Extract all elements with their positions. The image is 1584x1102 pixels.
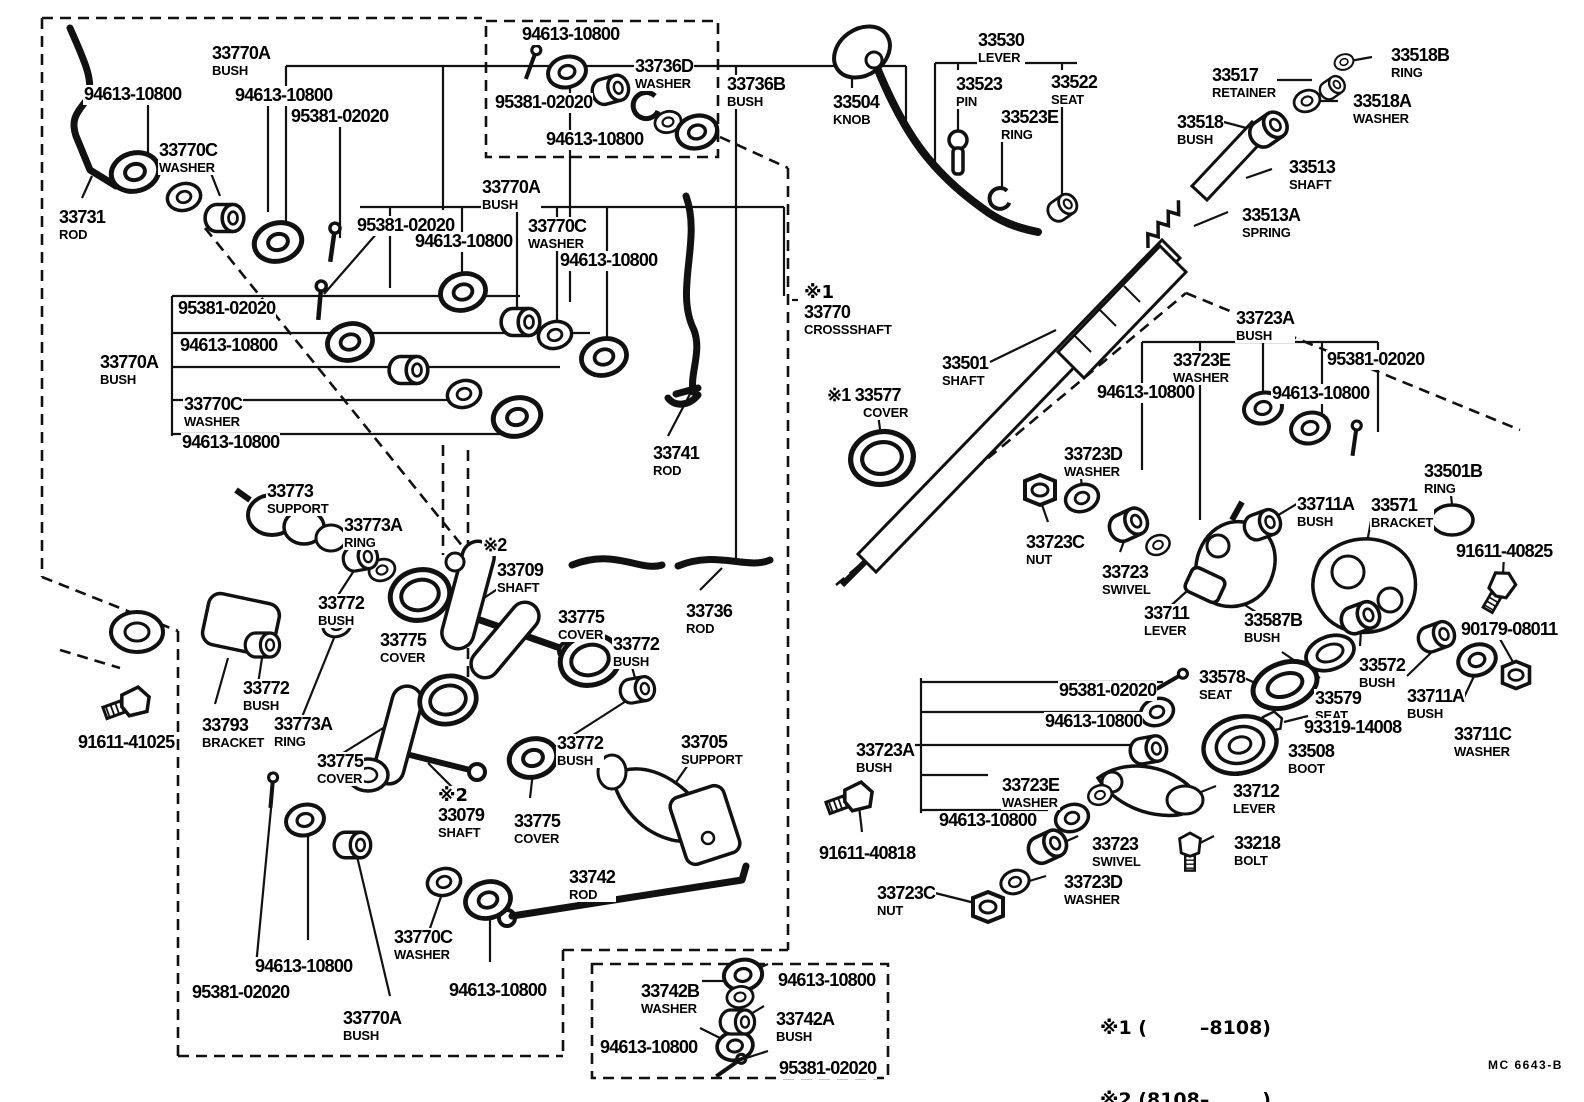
part-label: 33711CWASHER xyxy=(1453,725,1512,759)
part-label: 33770CWASHER xyxy=(183,395,243,429)
ref-mark: ※1 xyxy=(804,283,892,303)
part-subtitle: NUT xyxy=(877,904,935,918)
part-label: 33772BUSH xyxy=(242,679,290,713)
part-label: 94613-10800 xyxy=(777,971,876,991)
part-label: 94613-10800 xyxy=(521,25,620,45)
part-label: 33517RETAINER xyxy=(1211,66,1277,100)
part-label: 95381-02020 xyxy=(1326,350,1425,370)
part-number: 94613-10800 xyxy=(1097,382,1194,402)
part-subtitle: SHAFT xyxy=(1289,178,1335,192)
part-label: 91611-40825 xyxy=(1455,542,1553,562)
part-subtitle: SEAT xyxy=(1051,93,1097,107)
part-label: 94613-10800 xyxy=(1044,712,1143,732)
part-subtitle: RING xyxy=(1424,482,1482,496)
part-number: 94613-10800 xyxy=(84,84,181,104)
part-subtitle: BUSH xyxy=(1236,329,1294,343)
part-number: 33501B xyxy=(1424,461,1482,481)
part-subtitle: ROD xyxy=(686,622,732,636)
part-subtitle: BUSH xyxy=(557,754,603,768)
part-subtitle: WASHER xyxy=(184,415,242,429)
part-number: 33772 xyxy=(613,634,659,654)
part-label: 95381-02020 xyxy=(290,107,389,127)
part-number: 33523E xyxy=(1001,107,1058,127)
part-number: 33723E xyxy=(1002,775,1059,795)
part-label: 33731ROD xyxy=(58,208,106,242)
part-number: 33742A xyxy=(776,1009,834,1029)
part-number: 94613-10800 xyxy=(522,24,619,44)
part-label: 33530LEVER xyxy=(977,31,1025,65)
part-label: 94613-10800 xyxy=(414,232,513,252)
part-number: 33572 xyxy=(1359,655,1405,675)
part-number: 33518B xyxy=(1391,45,1449,65)
part-subtitle: SHAFT xyxy=(438,826,484,840)
part-number: 95381-02020 xyxy=(192,982,289,1002)
part-label: 33770ABUSH xyxy=(99,353,159,387)
part-number: 33723A xyxy=(1236,308,1294,328)
part-number: 33773A xyxy=(274,714,332,734)
part-number: 33775 xyxy=(558,607,604,627)
part-label: 33773SUPPORT xyxy=(266,482,329,516)
part-label: 33770CWASHER xyxy=(393,928,453,962)
part-number: 33773A xyxy=(344,515,402,535)
part-label: 33736ROD xyxy=(685,602,733,636)
part-subtitle: BRACKET xyxy=(202,736,264,750)
part-label: 33772BUSH xyxy=(612,635,660,669)
part-number: 33711A xyxy=(1297,494,1354,514)
part-number: 33218 xyxy=(1234,833,1280,853)
part-subtitle: COVER xyxy=(380,651,426,665)
part-number: 33736B xyxy=(727,74,785,94)
part-number: 33742 xyxy=(569,867,615,887)
part-label: 33523ERING xyxy=(1000,108,1059,142)
part-number: 33775 xyxy=(380,630,426,650)
part-subtitle: RING xyxy=(1391,66,1449,80)
part-label: 95381-02020 xyxy=(1058,681,1157,701)
part-number: 94613-10800 xyxy=(180,335,277,355)
part-label: 33712LEVER xyxy=(1232,782,1280,816)
part-number: 33712 xyxy=(1233,781,1279,801)
part-label: 33513SHAFT xyxy=(1288,158,1336,192)
part-number: 94613-10800 xyxy=(600,1037,697,1057)
part-number: 94613-10800 xyxy=(415,231,512,251)
part-label: 33775COVER xyxy=(513,812,561,846)
part-number: 33736 xyxy=(686,601,732,621)
part-number: 33709 xyxy=(497,560,543,580)
part-subtitle: BUSH xyxy=(856,761,914,775)
part-label: 33723CNUT xyxy=(1025,533,1085,567)
part-subtitle: WASHER xyxy=(635,77,693,91)
part-number: 33711 xyxy=(1144,603,1189,623)
part-number: 33504 xyxy=(833,92,879,112)
part-number: 33772 xyxy=(318,593,364,613)
part-subtitle: BUSH xyxy=(613,655,659,669)
part-subtitle: BOOT xyxy=(1288,762,1334,776)
part-number: 94613-10800 xyxy=(560,250,657,270)
part-subtitle: BUSH xyxy=(1359,676,1405,690)
part-subtitle: LEVER xyxy=(1144,624,1189,638)
part-label: 94613-10800 xyxy=(181,433,280,453)
part-subtitle: BUSH xyxy=(1297,515,1354,529)
part-label: 33772BUSH xyxy=(556,734,604,768)
part-label: 95381-02020 xyxy=(494,93,593,113)
part-label: 33504KNOB xyxy=(832,93,880,127)
part-subtitle: BOLT xyxy=(1234,854,1280,868)
part-label: 33742ABUSH xyxy=(775,1010,835,1044)
part-number: 33770A xyxy=(482,177,540,197)
part-subtitle: BUSH xyxy=(1407,707,1464,721)
part-number: 33587B xyxy=(1244,610,1302,630)
part-number: 33770C xyxy=(528,216,586,236)
part-subtitle: KNOB xyxy=(833,113,879,127)
part-number: 94613-10800 xyxy=(1272,383,1369,403)
part-label: 94613-10800 xyxy=(559,251,658,271)
part-label: 33723DWASHER xyxy=(1063,873,1123,907)
part-subtitle: NUT xyxy=(1026,553,1084,567)
part-number: 33518 xyxy=(1177,112,1223,132)
part-number: 94613-10800 xyxy=(182,432,279,452)
part-subtitle: WASHER xyxy=(528,237,586,251)
part-number: 94613-10800 xyxy=(778,970,875,990)
part-number: 94613-10800 xyxy=(449,980,546,1000)
part-label: 33736DWASHER xyxy=(634,57,694,91)
part-label: 33775COVER xyxy=(316,752,364,786)
part-number: 33711C xyxy=(1454,724,1511,744)
part-subtitle: RING xyxy=(344,536,402,550)
part-label: 95381-02020 xyxy=(778,1059,877,1079)
document-code: MC 6643-B xyxy=(1488,1058,1563,1072)
part-label: 33723CNUT xyxy=(876,884,936,918)
part-label: 95381-02020 xyxy=(177,299,276,319)
part-number: 95381-02020 xyxy=(178,298,275,318)
part-label: 94613-10800 xyxy=(1271,384,1370,404)
part-subtitle: WASHER xyxy=(1002,796,1059,810)
part-number: 33772 xyxy=(557,733,603,753)
part-label: 94613-10800 xyxy=(83,85,182,105)
part-label: 94613-10800 xyxy=(938,811,1037,831)
part-label: 33218BOLT xyxy=(1233,834,1281,868)
part-number: 33513 xyxy=(1289,157,1335,177)
part-subtitle: SHAFT xyxy=(497,581,543,595)
part-number: 33723E xyxy=(1173,350,1230,370)
part-subtitle: WASHER xyxy=(1353,112,1411,126)
part-subtitle: ROD xyxy=(569,888,615,902)
part-label: 91611-41025 xyxy=(77,733,175,753)
part-label: 33772BUSH xyxy=(317,594,365,628)
part-label: 33523PIN xyxy=(955,75,1003,109)
part-number: 33770C xyxy=(184,394,242,414)
part-label: ※133770CROSSSHAFT xyxy=(803,283,893,337)
part-number: ※2 xyxy=(483,535,507,555)
part-label: 94613-10800 xyxy=(599,1038,698,1058)
diagram-art xyxy=(0,0,1584,1102)
part-label: 33770ABUSH xyxy=(342,1009,402,1043)
part-label: 90179-08011 xyxy=(1460,620,1558,640)
part-subtitle: BRACKET xyxy=(1371,516,1433,530)
part-label: 33723EWASHER xyxy=(1001,776,1060,810)
part-label: ※233079SHAFT xyxy=(437,786,485,840)
part-label: 33513ASPRING xyxy=(1241,206,1301,240)
part-number: 33530 xyxy=(978,30,1024,50)
part-subtitle: BUSH xyxy=(1244,631,1302,645)
part-number: 94613-10800 xyxy=(255,956,352,976)
part-number: 94613-10800 xyxy=(546,129,643,149)
note-line-1: ※1 ( –8108) xyxy=(1100,1016,1271,1040)
part-number: 33579 xyxy=(1315,688,1361,708)
part-number: 33522 xyxy=(1051,72,1097,92)
part-number: 91611-40825 xyxy=(1456,541,1552,561)
part-label: 33578SEAT xyxy=(1198,668,1246,702)
part-subtitle: COVER xyxy=(558,628,604,642)
part-label: 33736BBUSH xyxy=(726,75,786,109)
part-subtitle: SWIVEL xyxy=(1092,855,1141,869)
part-number: 95381-02020 xyxy=(1059,680,1156,700)
part-label: 33709SHAFT xyxy=(496,561,544,595)
part-number: 33770C xyxy=(159,140,217,160)
part-number: 94613-10800 xyxy=(1045,711,1142,731)
part-label: 33587BBUSH xyxy=(1243,611,1303,645)
part-number: 33770A xyxy=(100,352,158,372)
part-label: 94613-10800 xyxy=(254,957,353,977)
part-number: 33711A xyxy=(1407,686,1464,706)
part-subtitle: WASHER xyxy=(1064,465,1122,479)
part-label: 33723SWIVEL xyxy=(1091,835,1142,869)
part-label: 33723DWASHER xyxy=(1063,445,1123,479)
part-subtitle: BUSH xyxy=(482,198,540,212)
part-number: 33517 xyxy=(1212,65,1258,85)
part-number: 94613-10800 xyxy=(235,85,332,105)
part-subtitle: LEVER xyxy=(1233,802,1279,816)
part-number: 33770C xyxy=(394,927,452,947)
part-number: 33578 xyxy=(1199,667,1245,687)
part-subtitle: SUPPORT xyxy=(681,753,742,767)
part-subtitle: RING xyxy=(274,735,332,749)
part-label: 94613-10800 xyxy=(448,981,547,1001)
part-number: 33775 xyxy=(317,751,363,771)
part-number: 33523 xyxy=(956,74,1002,94)
part-label: 33723SWIVEL xyxy=(1101,563,1152,597)
part-subtitle: WASHER xyxy=(1064,893,1122,907)
part-label: 33711LEVER xyxy=(1143,604,1190,638)
part-subtitle: ROD xyxy=(59,228,105,242)
part-number: 33731 xyxy=(59,207,105,227)
production-notes: ※1 ( –8108) ※2 (8108– ) xyxy=(1098,968,1277,1102)
part-number: 33793 xyxy=(202,715,248,735)
part-label: 33501BRING xyxy=(1423,462,1483,496)
part-number: ※1 33577 xyxy=(827,385,901,405)
part-label: 33770CWASHER xyxy=(158,141,218,175)
part-subtitle: COVER xyxy=(317,772,363,786)
part-subtitle: BUSH xyxy=(776,1030,834,1044)
part-label: 33770CWASHER xyxy=(527,217,587,251)
part-subtitle: BUSH xyxy=(727,95,785,109)
part-number: 33736D xyxy=(635,56,693,76)
note-line-2: ※2 (8108– ) xyxy=(1100,1088,1271,1102)
part-label: 33773ARING xyxy=(343,516,403,550)
part-label: 33518AWASHER xyxy=(1352,92,1412,126)
part-label: 33793BRACKET xyxy=(201,716,265,750)
part-label: 93319-14008 xyxy=(1303,718,1402,738)
part-number: 33723 xyxy=(1102,562,1148,582)
part-subtitle: BUSH xyxy=(343,1029,401,1043)
part-subtitle: ROD xyxy=(653,464,699,478)
part-number: 33723A xyxy=(856,740,914,760)
part-label: 33711ABUSH xyxy=(1406,687,1465,721)
part-number: 33723D xyxy=(1064,872,1122,892)
part-label: 94613-10800 xyxy=(234,86,333,106)
part-number: 33501 xyxy=(942,353,988,373)
part-number: 33742B xyxy=(641,981,699,1001)
part-label: 94613-10800 xyxy=(179,336,278,356)
part-subtitle: RING xyxy=(1001,128,1058,142)
part-subtitle: BUSH xyxy=(212,64,270,78)
part-number: 33079 xyxy=(438,805,484,825)
part-label: 33775COVER xyxy=(557,608,605,642)
part-label: 33775COVER xyxy=(379,631,427,665)
part-number: 33518A xyxy=(1353,91,1411,111)
part-number: 33723D xyxy=(1064,444,1122,464)
part-label: 95381-02020 xyxy=(191,983,290,1003)
part-number: 95381-02020 xyxy=(779,1058,876,1078)
part-subtitle: SWIVEL xyxy=(1102,583,1151,597)
part-number: 91611-41025 xyxy=(78,732,174,752)
part-label: 33572BUSH xyxy=(1358,656,1406,690)
parts-diagram-page: 33770ABUSH94613-1080094613-1080095381-02… xyxy=(0,0,1584,1102)
part-number: 33723 xyxy=(1092,834,1138,854)
part-label: 94613-10800 xyxy=(1096,383,1195,403)
part-subtitle: SUPPORT xyxy=(267,502,328,516)
part-number: 33770A xyxy=(212,43,270,63)
part-label: 33508BOOT xyxy=(1287,742,1335,776)
part-subtitle: COVER xyxy=(827,406,908,420)
part-label: 33742BWASHER xyxy=(640,982,700,1016)
part-number: 94613-10800 xyxy=(939,810,1036,830)
part-subtitle: LEVER xyxy=(978,51,1024,65)
part-number: 91611-40818 xyxy=(819,843,915,863)
part-label: 33723EWASHER xyxy=(1172,351,1231,385)
part-subtitle: RETAINER xyxy=(1212,86,1276,100)
part-subtitle: COVER xyxy=(514,832,560,846)
part-number: 33723C xyxy=(877,883,935,903)
part-number: 95381-02020 xyxy=(1327,349,1424,369)
part-number: 93319-14008 xyxy=(1304,717,1401,737)
part-label: 33571BRACKET xyxy=(1370,496,1434,530)
part-number: 33513A xyxy=(1242,205,1300,225)
part-label: 33522SEAT xyxy=(1050,73,1098,107)
part-number: 33773 xyxy=(267,481,313,501)
part-number: 33772 xyxy=(243,678,289,698)
part-label: ※2 xyxy=(482,536,508,556)
part-label: 33723ABUSH xyxy=(855,741,915,775)
part-number: 90179-08011 xyxy=(1461,619,1557,639)
part-subtitle: BUSH xyxy=(100,373,158,387)
part-subtitle: CROSSSHAFT xyxy=(804,323,892,337)
part-subtitle: BUSH xyxy=(318,614,364,628)
ref-mark: ※2 xyxy=(438,786,484,806)
part-label: 33773ARING xyxy=(273,715,333,749)
part-label: 33518BUSH xyxy=(1176,113,1224,147)
part-label: ※1 33577COVER xyxy=(826,386,909,420)
part-subtitle: SEAT xyxy=(1199,688,1245,702)
part-label: 33742ROD xyxy=(568,868,616,902)
part-number: 33741 xyxy=(653,443,699,463)
part-subtitle: WASHER xyxy=(1454,745,1511,759)
part-label: 33711ABUSH xyxy=(1296,495,1355,529)
part-subtitle: PIN xyxy=(956,95,1002,109)
part-number: 33571 xyxy=(1371,495,1417,515)
part-subtitle: WASHER xyxy=(159,161,217,175)
part-label: 33501SHAFT xyxy=(941,354,989,388)
part-label: 91611-40818 xyxy=(818,844,916,864)
part-number: 33770A xyxy=(343,1008,401,1028)
part-label: 33770ABUSH xyxy=(211,44,271,78)
part-label: 33518BRING xyxy=(1390,46,1450,80)
part-subtitle: WASHER xyxy=(641,1002,699,1016)
part-subtitle: BUSH xyxy=(1177,133,1223,147)
part-label: 33770ABUSH xyxy=(481,178,541,212)
part-number: 33770 xyxy=(804,302,850,322)
part-number: 33723C xyxy=(1026,532,1084,552)
part-label: 33705SUPPORT xyxy=(680,733,743,767)
part-number: 33705 xyxy=(681,732,727,752)
part-number: 95381-02020 xyxy=(291,106,388,126)
part-number: 33508 xyxy=(1288,741,1334,761)
part-subtitle: WASHER xyxy=(394,948,452,962)
part-label: 94613-10800 xyxy=(545,130,644,150)
part-number: 33775 xyxy=(514,811,560,831)
part-subtitle: SHAFT xyxy=(942,374,988,388)
part-number: 95381-02020 xyxy=(495,92,592,112)
part-label: 33741ROD xyxy=(652,444,700,478)
part-subtitle: SPRING xyxy=(1242,226,1300,240)
part-label: 33723ABUSH xyxy=(1235,309,1295,343)
part-subtitle: BUSH xyxy=(243,699,289,713)
